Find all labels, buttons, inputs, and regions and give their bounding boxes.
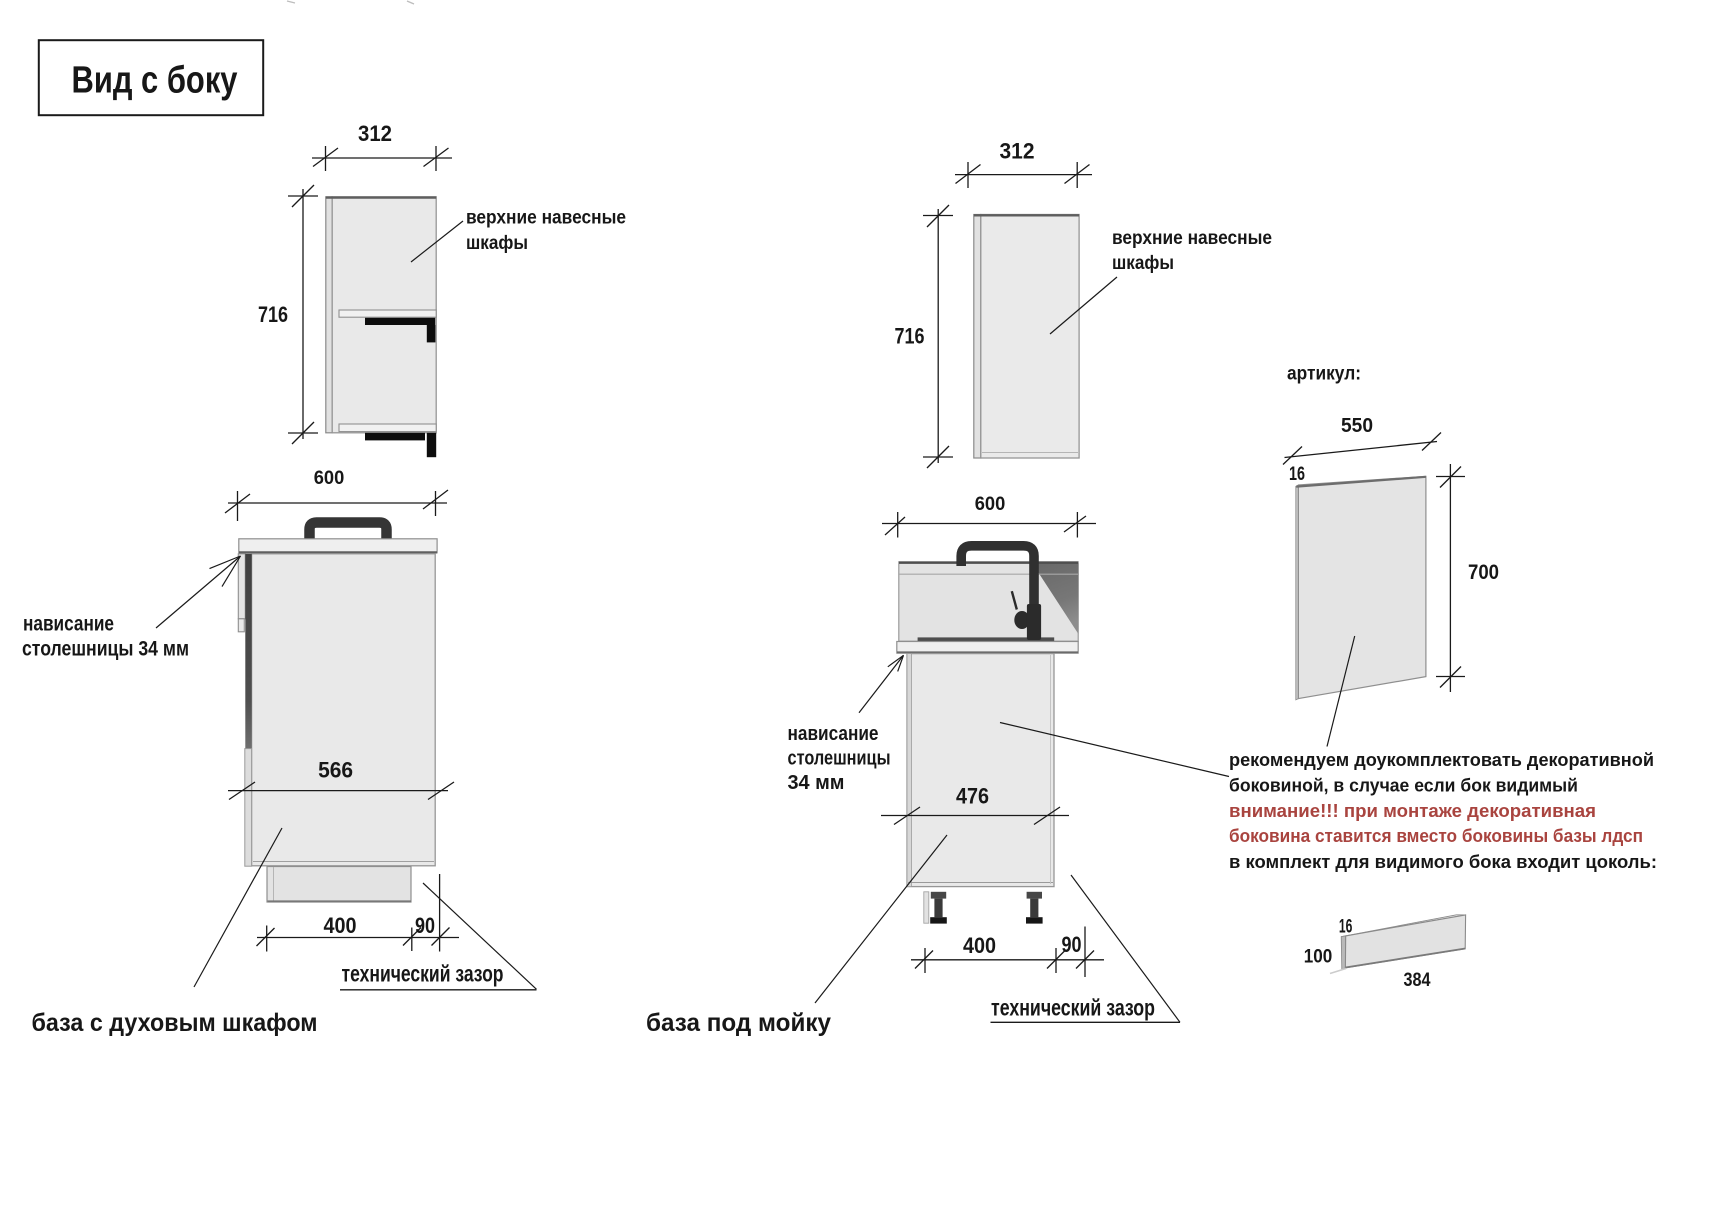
svg-text:312: 312	[1000, 139, 1035, 164]
svg-text:700: 700	[1468, 561, 1499, 584]
svg-text:384: 384	[1404, 970, 1431, 991]
svg-text:боковиной, в случае если бок в: боковиной, в случае если бок видимый	[1229, 776, 1578, 796]
svg-text:столешницы: столешницы	[788, 748, 891, 770]
svg-text:312: 312	[358, 121, 392, 146]
svg-text:технический зазор: технический зазор	[991, 995, 1155, 1021]
svg-text:600: 600	[975, 494, 1006, 515]
svg-text:нависание: нависание	[788, 723, 879, 745]
svg-text:артикул:: артикул:	[1287, 364, 1361, 385]
svg-text:716: 716	[258, 302, 288, 327]
svg-text:верхние навесные: верхние навесные	[1112, 228, 1272, 249]
svg-text:в комплект для видимого бока в: в комплект для видимого бока входит цоко…	[1229, 852, 1657, 872]
svg-text:боковина ставится вместо боков: боковина ставится вместо боковины базы л…	[1229, 826, 1643, 846]
svg-text:400: 400	[324, 913, 357, 938]
svg-text:90: 90	[415, 913, 435, 938]
svg-text:база под мойку: база под мойку	[646, 1009, 831, 1037]
svg-text:16: 16	[1289, 464, 1305, 485]
svg-text:600: 600	[314, 468, 345, 489]
svg-text:34 мм: 34 мм	[788, 772, 845, 794]
svg-text:шкафы: шкафы	[466, 233, 528, 254]
svg-text:верхние навесные: верхние навесные	[466, 208, 626, 229]
svg-text:90: 90	[1062, 932, 1082, 957]
svg-text:716: 716	[895, 324, 925, 349]
svg-text:550: 550	[1341, 415, 1373, 437]
svg-text:шкафы: шкафы	[1112, 253, 1174, 274]
svg-text:база с духовым шкафом: база с духовым шкафом	[32, 1009, 318, 1037]
svg-text:566: 566	[318, 758, 353, 783]
svg-text:400: 400	[963, 933, 996, 958]
svg-text:16: 16	[1339, 917, 1353, 938]
svg-text:нависание: нависание	[23, 613, 114, 636]
svg-text:технический зазор: технический зазор	[342, 961, 504, 987]
svg-text:100: 100	[1304, 947, 1333, 968]
svg-text:476: 476	[956, 784, 989, 809]
svg-text:рекомендуем доукомплектовать д: рекомендуем доукомплектовать декоративно…	[1229, 750, 1654, 770]
svg-text:столешницы 34 мм: столешницы 34 мм	[22, 638, 189, 661]
svg-text:внимание!!! при монтаже декора: внимание!!! при монтаже декоративная	[1229, 801, 1596, 821]
svg-text:Вид с боку: Вид с боку	[72, 60, 238, 102]
